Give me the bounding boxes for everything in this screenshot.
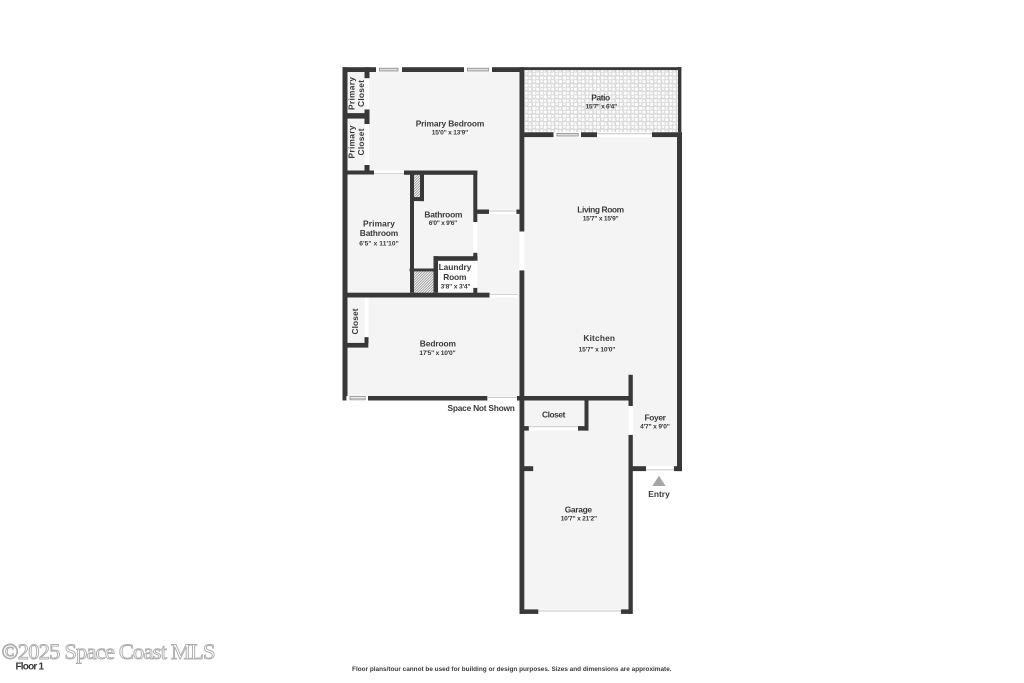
svg-text:Bedroom: Bedroom [420, 339, 456, 349]
svg-text:Closet: Closet [356, 128, 366, 155]
svg-text:15'0" x 13'9": 15'0" x 13'9" [432, 129, 469, 136]
svg-text:10'7" x 21'2": 10'7" x 21'2" [561, 515, 597, 522]
svg-text:15'7" x 6'4": 15'7" x 6'4" [586, 104, 618, 111]
svg-text:Patio: Patio [591, 92, 610, 102]
svg-text:Laundry: Laundry [439, 262, 472, 272]
svg-text:Closet: Closet [356, 80, 366, 107]
svg-text:Room: Room [443, 272, 466, 282]
svg-text:15'7" x 15'9": 15'7" x 15'9" [583, 216, 619, 223]
svg-text:Entry: Entry [648, 489, 670, 499]
svg-text:17'5" x 10'0": 17'5" x 10'0" [419, 350, 455, 357]
svg-text:Primary Bedroom: Primary Bedroom [416, 118, 485, 128]
svg-text:Garage: Garage [565, 504, 593, 514]
svg-text:Kitchen: Kitchen [583, 333, 615, 343]
svg-text:Living Room: Living Room [577, 205, 624, 215]
svg-text:©2025 Space Coast MLS: ©2025 Space Coast MLS [2, 639, 216, 664]
svg-text:Closet: Closet [542, 410, 566, 420]
svg-text:15'7" x 10'0": 15'7" x 10'0" [579, 347, 616, 354]
svg-text:Closet: Closet [350, 308, 360, 334]
svg-text:Bathroom: Bathroom [424, 209, 462, 219]
svg-text:6'0" x 9'6": 6'0" x 9'6" [429, 220, 458, 227]
svg-text:Bathroom: Bathroom [360, 228, 398, 238]
svg-text:6'5" x 11'10": 6'5" x 11'10" [359, 240, 399, 247]
svg-text:Space Not Shown: Space Not Shown [448, 403, 515, 413]
svg-text:4'7" x 9'0": 4'7" x 9'0" [640, 423, 670, 430]
svg-text:Floor 1: Floor 1 [16, 662, 45, 673]
svg-text:Primary: Primary [363, 218, 395, 228]
svg-text:3'8" x 3'4": 3'8" x 3'4" [441, 284, 471, 291]
svg-text:Floor plans/tour cannot be use: Floor plans/tour cannot be used for buil… [352, 666, 672, 673]
svg-text:Foyer: Foyer [644, 412, 666, 422]
